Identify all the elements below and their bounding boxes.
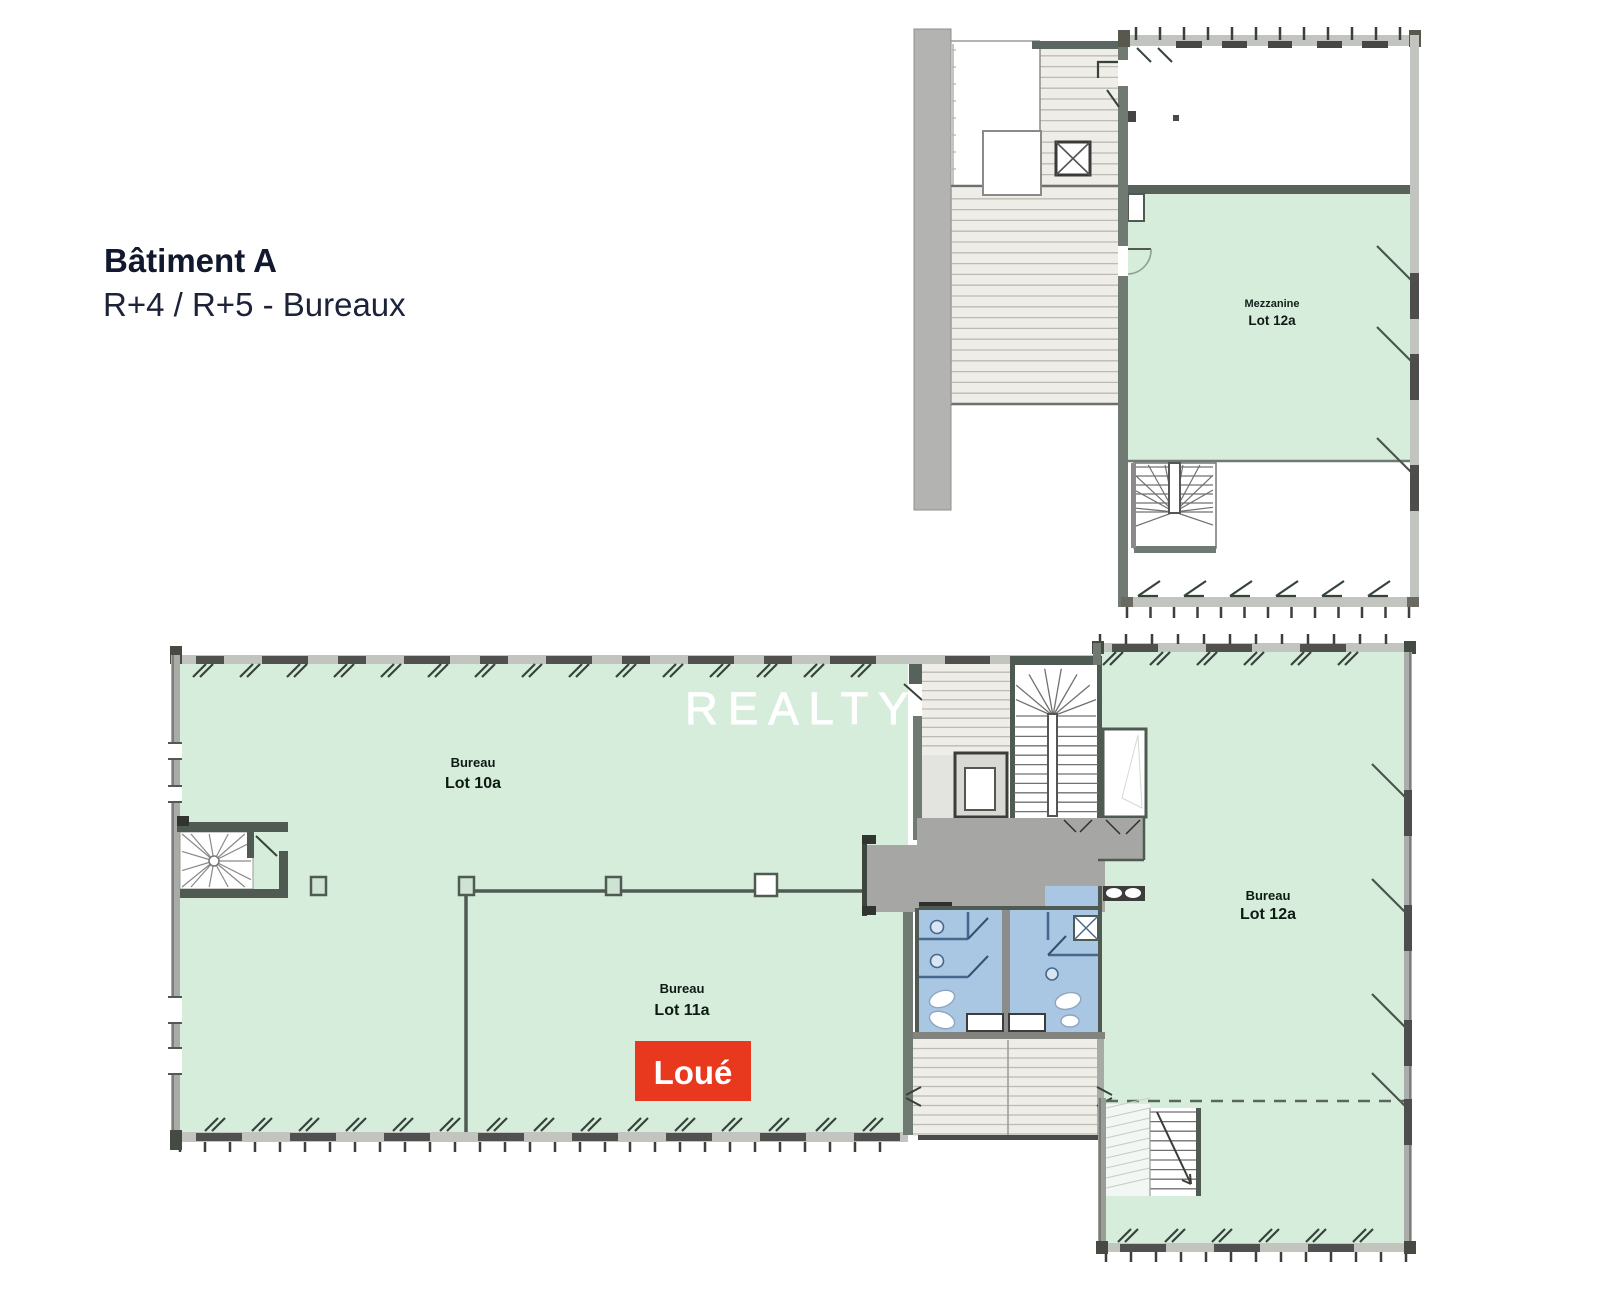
svg-text:Lot 12a: Lot 12a bbox=[1248, 313, 1296, 328]
svg-text:Bureau: Bureau bbox=[1246, 888, 1291, 903]
svg-text:Loué: Loué bbox=[654, 1054, 733, 1091]
svg-text:Bureau: Bureau bbox=[451, 755, 496, 770]
svg-text:R+4 / R+5 - Bureaux: R+4 / R+5 - Bureaux bbox=[103, 286, 406, 323]
svg-text:Bureau: Bureau bbox=[660, 981, 705, 996]
svg-text:Lot 10a: Lot 10a bbox=[445, 775, 501, 792]
svg-text:Lot 12a: Lot 12a bbox=[1240, 906, 1296, 923]
svg-text:REALTY: REALTY bbox=[685, 683, 919, 734]
svg-text:Mezzanine: Mezzanine bbox=[1244, 298, 1299, 310]
svg-text:Bâtiment A: Bâtiment A bbox=[104, 242, 277, 279]
svg-text:Lot 11a: Lot 11a bbox=[654, 1002, 709, 1019]
